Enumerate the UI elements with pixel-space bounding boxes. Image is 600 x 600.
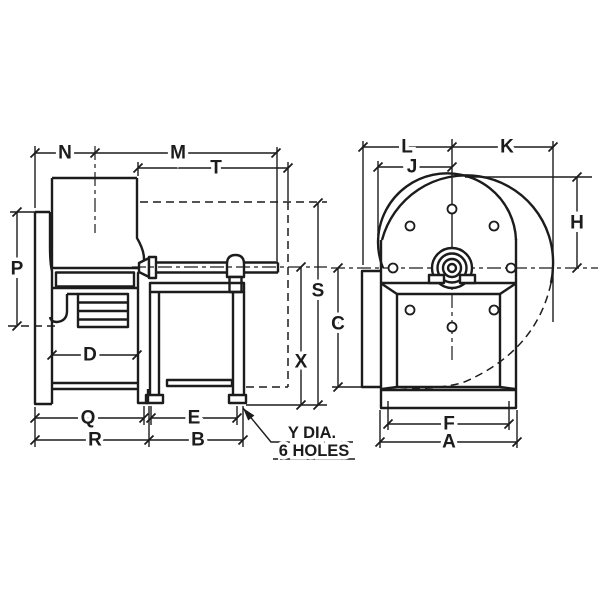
panel-hole xyxy=(448,205,457,214)
dim-label-e: E xyxy=(188,408,201,429)
bearing-pedestal xyxy=(230,277,242,292)
panel-hole xyxy=(406,222,415,231)
dim-label-h: H xyxy=(570,213,584,234)
dim-label-t: T xyxy=(210,158,222,179)
dim-label-c: C xyxy=(331,314,345,335)
dim-label-r: R xyxy=(88,430,102,451)
dim-label-a: A xyxy=(442,432,456,453)
dim-label-q: Q xyxy=(81,408,96,429)
blower-dimension-drawing: N M T P D S X Q E R B L K J H C F A Y DI… xyxy=(0,0,600,600)
note-6-holes: 6 HOLES xyxy=(279,442,350,460)
panel-hole xyxy=(389,264,398,273)
dim-label-b: B xyxy=(191,430,205,451)
dim-label-x: X xyxy=(295,352,308,373)
dim-label-l: L xyxy=(401,137,413,158)
bearing-side xyxy=(227,255,244,277)
dim-label-n: N xyxy=(58,143,72,164)
panel-hole xyxy=(448,323,457,332)
dim-label-j: J xyxy=(407,157,418,178)
panel-hole xyxy=(507,264,516,273)
panel-hole xyxy=(490,222,499,231)
note-y-dia: Y DIA. xyxy=(288,424,336,442)
drawing-background xyxy=(0,0,600,600)
panel-hole xyxy=(490,306,499,315)
panel-hole xyxy=(406,306,415,315)
dim-label-p: P xyxy=(11,259,24,280)
dim-label-s: S xyxy=(312,281,325,302)
bearing-bore xyxy=(448,264,456,272)
dim-label-k: K xyxy=(500,137,514,158)
drawing-canvas: N M T P D S X Q E R B L K J H C F A Y DI… xyxy=(0,0,600,600)
stand-shelf xyxy=(167,380,232,386)
dim-label-m: M xyxy=(170,143,186,164)
dim-label-d: D xyxy=(83,345,97,366)
